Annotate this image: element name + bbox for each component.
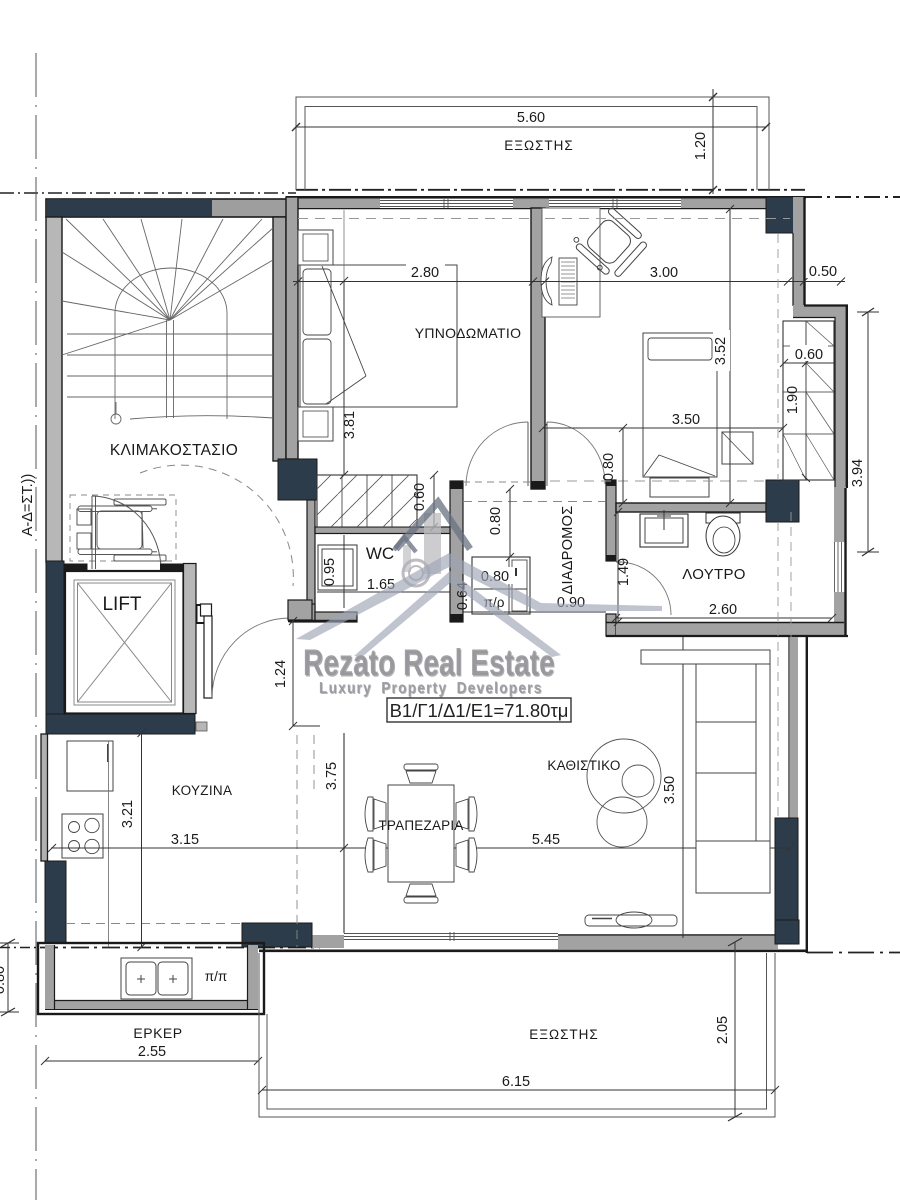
svg-text:1.20: 1.20 [693, 132, 709, 160]
svg-text:3.00: 3.00 [650, 265, 678, 281]
svg-text:0.80: 0.80 [488, 507, 504, 535]
svg-text:0.60: 0.60 [412, 483, 428, 511]
svg-text:Luxury Property Developers: Luxury Property Developers [319, 680, 543, 697]
svg-text:WC: WC [366, 544, 394, 563]
svg-text:0.95: 0.95 [322, 558, 338, 586]
svg-text:ΚΑΘΙΣΤΙΚΟ: ΚΑΘΙΣΤΙΚΟ [547, 758, 620, 773]
svg-text:ΔΙΑΔΡΟΜΟΣ: ΔΙΑΔΡΟΜΟΣ [560, 505, 576, 594]
svg-text:5.45: 5.45 [532, 832, 560, 848]
svg-text:Α-Δ=ΣΤ.)): Α-Δ=ΣΤ.)) [20, 474, 36, 537]
svg-text:ΕΡΚΕΡ: ΕΡΚΕΡ [133, 1025, 182, 1041]
svg-text:2.60: 2.60 [709, 602, 737, 618]
svg-text:ΚΟΥΖΙΝΑ: ΚΟΥΖΙΝΑ [172, 783, 233, 798]
svg-text:0.60: 0.60 [795, 347, 823, 363]
svg-text:Β1/Γ1/Δ1/Ε1=71.80τμ: Β1/Γ1/Δ1/Ε1=71.80τμ [390, 700, 569, 721]
svg-text:LIFT: LIFT [102, 594, 141, 615]
svg-text:5.60: 5.60 [517, 110, 545, 126]
svg-text:2.55: 2.55 [138, 1044, 166, 1060]
svg-text:1.90: 1.90 [785, 386, 801, 414]
svg-text:1.49: 1.49 [616, 558, 632, 586]
svg-text:3.81: 3.81 [342, 411, 358, 439]
svg-text:3.21: 3.21 [120, 800, 136, 828]
svg-text:ΕΞΩΣΤΗΣ: ΕΞΩΣΤΗΣ [504, 138, 574, 153]
svg-text:0.50: 0.50 [809, 264, 837, 280]
svg-text:3.50: 3.50 [672, 412, 700, 428]
svg-text:3.52: 3.52 [713, 337, 729, 365]
svg-text:3.15: 3.15 [171, 832, 199, 848]
svg-text:ΕΞΩΣΤΗΣ: ΕΞΩΣΤΗΣ [529, 1027, 599, 1042]
svg-text:3.94: 3.94 [850, 459, 866, 487]
svg-text:π/π: π/π [205, 969, 227, 984]
svg-text:3.75: 3.75 [324, 762, 340, 790]
svg-text:2.05: 2.05 [715, 1016, 731, 1044]
svg-text:ΥΠΝΟΔΩΜΑΤΙΟ: ΥΠΝΟΔΩΜΑΤΙΟ [415, 325, 522, 341]
svg-text:1.24: 1.24 [273, 660, 289, 688]
svg-text:0.80: 0.80 [0, 966, 8, 994]
svg-text:Rezato Real Estate: Rezato Real Estate [303, 641, 555, 683]
svg-text:ΛΟΥΤΡΟ: ΛΟΥΤΡΟ [682, 566, 746, 583]
svg-text:2.80: 2.80 [411, 265, 439, 281]
svg-text:6.15: 6.15 [502, 1074, 530, 1090]
svg-text:3.50: 3.50 [662, 776, 678, 804]
svg-text:ΚΛΙΜΑΚΟΣΤΑΣΙΟ: ΚΛΙΜΑΚΟΣΤΑΣΙΟ [110, 442, 238, 459]
svg-text:0.80: 0.80 [601, 453, 617, 481]
svg-text:ΤΡΑΠΕΖΑΡΙΑ: ΤΡΑΠΕΖΑΡΙΑ [378, 818, 463, 833]
